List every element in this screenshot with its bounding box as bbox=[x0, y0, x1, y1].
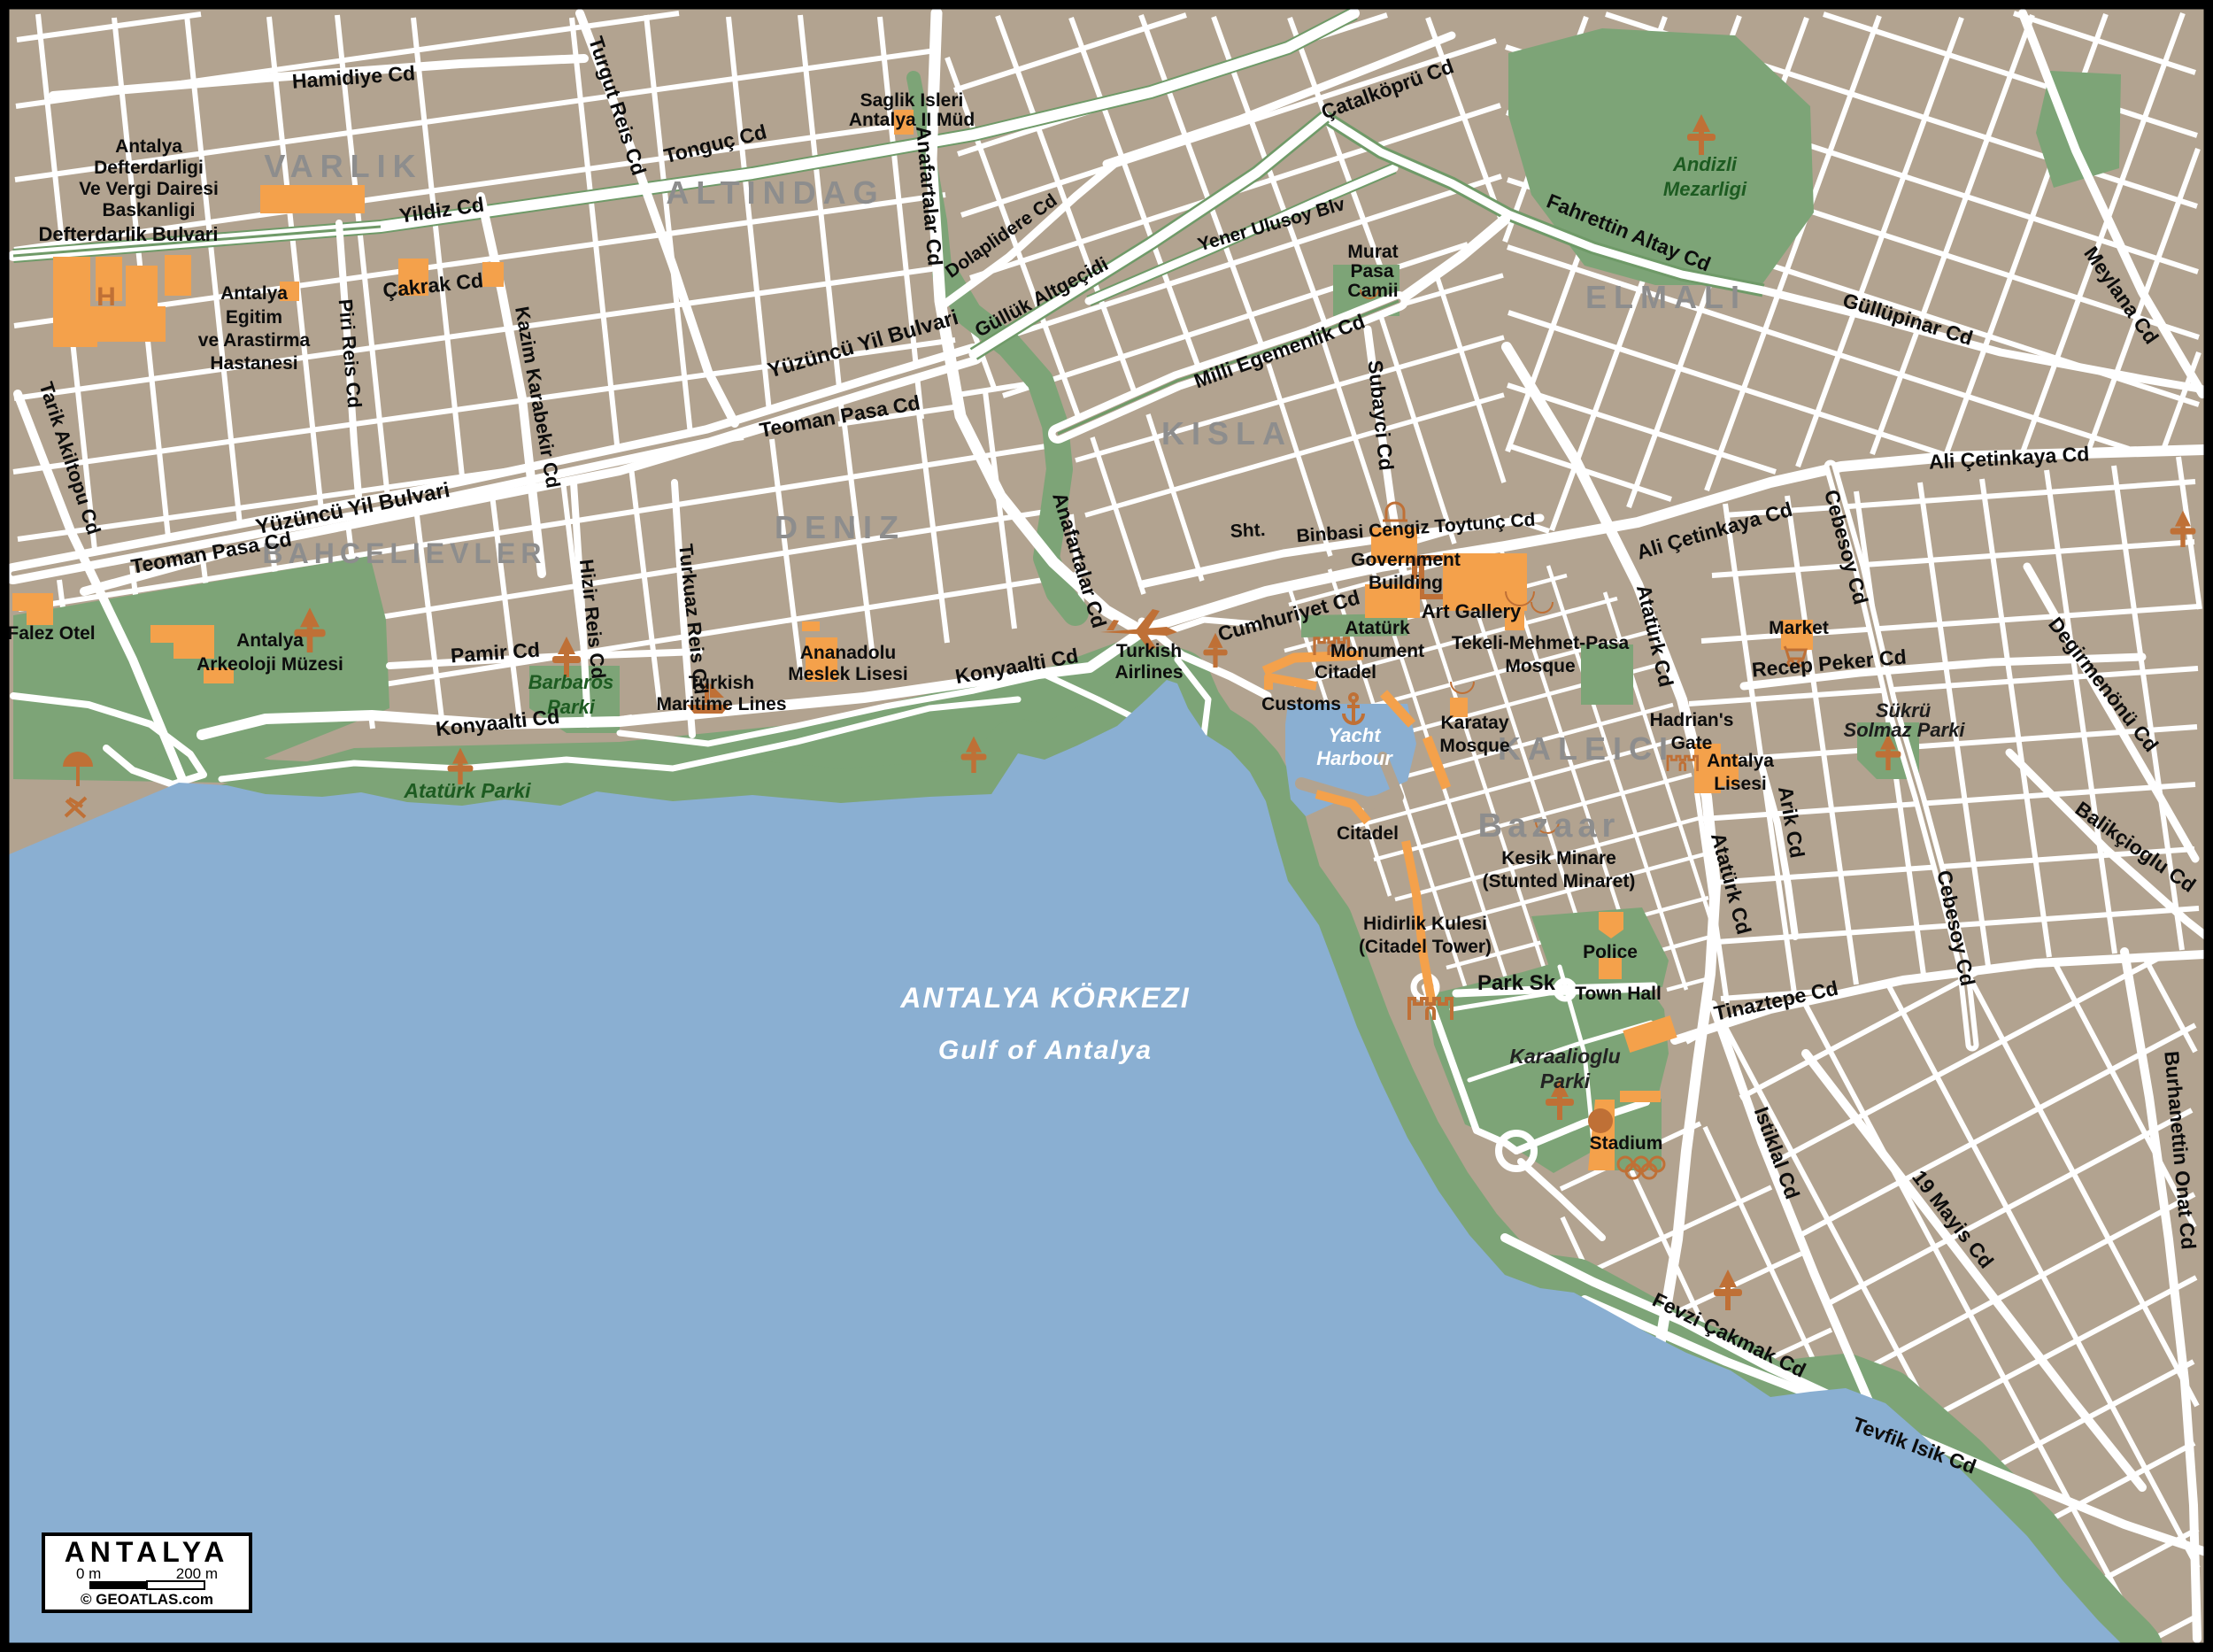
svg-text:Turkish: Turkish bbox=[689, 673, 754, 693]
svg-text:Pasa: Pasa bbox=[1350, 261, 1393, 282]
svg-text:Solmaz Parki: Solmaz Parki bbox=[1844, 719, 1966, 741]
svg-text:Andizli: Andizli bbox=[1672, 153, 1738, 175]
svg-text:Antalya: Antalya bbox=[220, 283, 288, 304]
svg-text:Building: Building bbox=[1369, 573, 1443, 593]
svg-text:VARLIK: VARLIK bbox=[264, 148, 422, 184]
svg-text:Hidirlik Kulesi: Hidirlik Kulesi bbox=[1363, 914, 1487, 934]
svg-text:Atatürk: Atatürk bbox=[1345, 618, 1410, 638]
svg-text:Town Hall: Town Hall bbox=[1575, 984, 1662, 1004]
svg-text:Mezarligi: Mezarligi bbox=[1663, 178, 1747, 200]
svg-text:Turkish: Turkish bbox=[1116, 641, 1182, 661]
svg-text:Airlines: Airlines bbox=[1114, 662, 1183, 683]
svg-text:Customs: Customs bbox=[1261, 694, 1341, 714]
svg-text:Mosque: Mosque bbox=[1439, 736, 1509, 756]
svg-text:Hadrian's: Hadrian's bbox=[1650, 710, 1734, 730]
svg-text:Egitim: Egitim bbox=[226, 307, 282, 328]
svg-text:Antalya: Antalya bbox=[236, 630, 304, 651]
svg-text:Art Gallery: Art Gallery bbox=[1422, 600, 1522, 622]
svg-text:ALTINDAG: ALTINDAG bbox=[666, 174, 884, 211]
svg-text:Parki: Parki bbox=[1540, 1069, 1591, 1092]
svg-text:(Citadel Tower): (Citadel Tower) bbox=[1359, 937, 1492, 957]
svg-text:Park Sk: Park Sk bbox=[1477, 971, 1556, 995]
svg-text:H: H bbox=[96, 282, 116, 312]
svg-text:BAHCELIEVLER: BAHCELIEVLER bbox=[263, 537, 547, 569]
svg-text:Bazaar: Bazaar bbox=[1478, 807, 1621, 845]
svg-text:Lisesi: Lisesi bbox=[1714, 774, 1767, 794]
svg-text:Antalya II Müd: Antalya II Müd bbox=[849, 110, 975, 130]
svg-text:(Stunted Minaret): (Stunted Minaret) bbox=[1483, 871, 1636, 892]
svg-text:Citadel: Citadel bbox=[1315, 662, 1376, 683]
svg-text:Gulf of Antalya: Gulf of Antalya bbox=[938, 1036, 1153, 1065]
svg-text:Arkeoloji Müzesi: Arkeoloji Müzesi bbox=[197, 654, 343, 675]
svg-text:ANTALYA KÖRKEZI: ANTALYA KÖRKEZI bbox=[899, 982, 1190, 1014]
svg-text:Monument: Monument bbox=[1330, 641, 1424, 661]
svg-text:Murat: Murat bbox=[1347, 242, 1398, 262]
svg-text:Atatürk Parki: Atatürk Parki bbox=[403, 779, 531, 802]
svg-text:© GEOATLAS.com: © GEOATLAS.com bbox=[81, 1591, 213, 1608]
svg-text:Tekeli-Mehmet-Pasa: Tekeli-Mehmet-Pasa bbox=[1452, 633, 1630, 653]
svg-text:Ve Vergi Dairesi: Ve Vergi Dairesi bbox=[79, 179, 219, 199]
svg-text:Kesik Minare: Kesik Minare bbox=[1501, 848, 1616, 868]
svg-text:Baskanligi: Baskanligi bbox=[102, 200, 195, 220]
svg-text:Government: Government bbox=[1351, 550, 1461, 570]
svg-text:Meslek Lisesi: Meslek Lisesi bbox=[788, 664, 907, 684]
svg-text:200 m: 200 m bbox=[176, 1565, 218, 1582]
svg-text:0 m: 0 m bbox=[76, 1565, 101, 1582]
svg-text:Stadium: Stadium bbox=[1590, 1133, 1663, 1154]
svg-text:Yacht: Yacht bbox=[1328, 724, 1382, 746]
svg-text:ANTALYA: ANTALYA bbox=[65, 1536, 230, 1568]
svg-text:Karatay: Karatay bbox=[1440, 713, 1508, 733]
svg-text:Defterdarlik Bulvari: Defterdarlik Bulvari bbox=[39, 223, 219, 245]
svg-text:Market: Market bbox=[1769, 618, 1829, 638]
svg-text:ve Arastirma: ve Arastirma bbox=[198, 330, 311, 351]
svg-text:Antalya: Antalya bbox=[1707, 751, 1774, 771]
svg-text:Karaalioglu: Karaalioglu bbox=[1509, 1045, 1620, 1068]
svg-text:Camii: Camii bbox=[1347, 281, 1398, 301]
svg-text:ELMALI: ELMALI bbox=[1585, 279, 1746, 315]
svg-text:Saglik Isleri: Saglik Isleri bbox=[860, 90, 964, 111]
svg-text:Hastanesi: Hastanesi bbox=[210, 353, 297, 374]
svg-text:Sht.: Sht. bbox=[1230, 520, 1266, 542]
svg-text:Falez Otel: Falez Otel bbox=[7, 623, 95, 644]
svg-text:KISLA: KISLA bbox=[1161, 415, 1292, 452]
svg-text:Citadel: Citadel bbox=[1337, 823, 1399, 844]
svg-text:DENIZ: DENIZ bbox=[775, 509, 906, 545]
svg-text:Defterdarligi: Defterdarligi bbox=[94, 158, 204, 178]
svg-text:Antalya: Antalya bbox=[115, 136, 182, 157]
svg-text:KALEICI: KALEICI bbox=[1498, 730, 1675, 767]
svg-text:Police: Police bbox=[1583, 942, 1638, 962]
svg-text:Mosque: Mosque bbox=[1505, 656, 1575, 676]
svg-text:Maritime Lines: Maritime Lines bbox=[656, 694, 786, 714]
svg-text:Ananadolu: Ananadolu bbox=[800, 643, 897, 663]
svg-text:Harbour: Harbour bbox=[1316, 747, 1393, 769]
